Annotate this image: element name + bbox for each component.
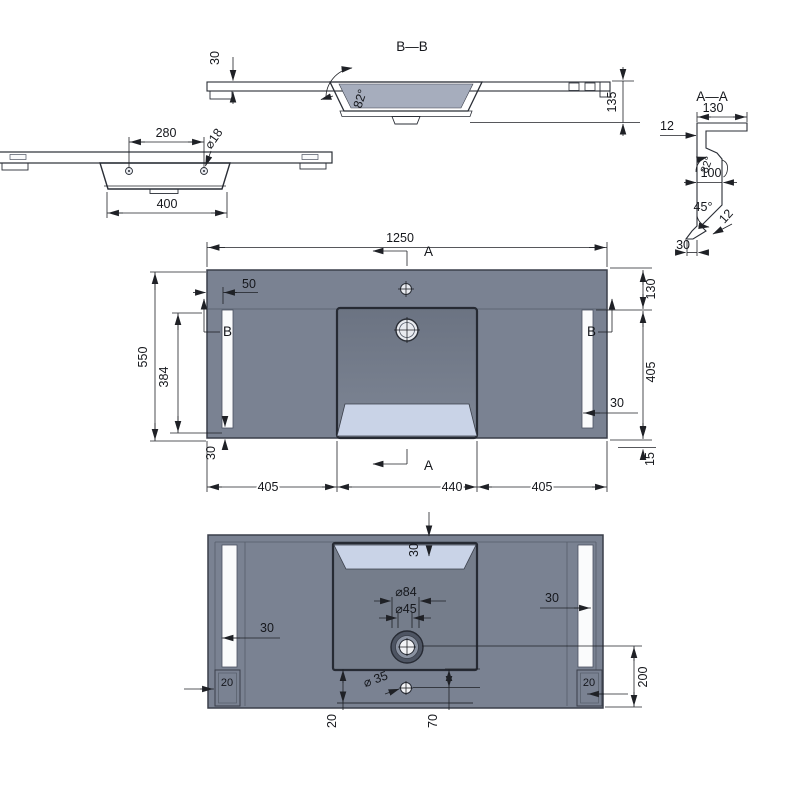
dim-drain-inner-dia: ⌀45 xyxy=(395,602,416,616)
dim-left-span: 405 xyxy=(258,480,279,494)
bb-left-foot xyxy=(210,91,232,99)
plan-view: 1250 A A B B 50 550 384 xyxy=(136,231,658,494)
dim-overflow-to-basin: 70 xyxy=(426,714,440,728)
dim-base-width: 30 xyxy=(676,238,690,252)
dim-basin-to-front: 384 xyxy=(157,367,171,388)
dim-total-height: 135 xyxy=(605,92,619,113)
bottom-left-slot xyxy=(222,545,237,667)
dim-right-foot-width: 20 xyxy=(583,677,595,689)
dim-basin-width: 400 xyxy=(157,197,178,211)
dim-front-margin: 15 xyxy=(643,452,657,466)
section-bb-title: B—B xyxy=(396,39,428,54)
bb-right-block-2 xyxy=(585,83,595,91)
bb-right-block-1 xyxy=(569,83,579,91)
section-marker-a-top: A xyxy=(424,244,433,259)
dim-wall-depth: 100 xyxy=(701,166,722,180)
dim-slot-length: 405 xyxy=(644,362,658,383)
dim-chamfer-angle: 45° xyxy=(694,200,713,214)
side-right-bracket xyxy=(300,163,326,169)
dim-slope-depth: 30 xyxy=(407,543,421,557)
dim-flange-width: 130 xyxy=(703,101,724,115)
bottom-right-slot xyxy=(578,545,593,667)
side-left-bracket xyxy=(2,163,28,170)
dim-left-slot-width: 30 xyxy=(260,621,274,635)
bottom-right-foot: 20 xyxy=(577,670,602,706)
plan-basin-slope xyxy=(337,404,477,436)
dim-drain-outer-dia: ⌀84 xyxy=(395,585,416,599)
bb-drain-boss xyxy=(392,117,420,125)
aa-profile-section xyxy=(686,123,747,239)
bottom-drain-assembly xyxy=(391,631,423,663)
dim-overall-width: 1250 xyxy=(386,231,414,245)
section-marker-a-bottom: A xyxy=(424,458,433,473)
bottom-view: 20 20 30 ⌀84 ⌀45 xyxy=(184,512,650,728)
dim-back-margin: 130 xyxy=(644,279,658,300)
aa-gasket-bump xyxy=(722,160,728,177)
side-countertop-slab xyxy=(0,152,332,163)
dim-slot-inset: 50 xyxy=(242,277,256,291)
side-left-slot xyxy=(10,155,26,160)
side-mount-hole-right xyxy=(201,168,208,175)
dim-right-slot-width: 30 xyxy=(545,591,559,605)
dim-drain-to-front: 200 xyxy=(636,667,650,688)
dim-slot-to-edge: 30 xyxy=(204,446,218,460)
side-right-slot xyxy=(302,155,318,160)
dim-chamfer-thickness: 12 xyxy=(716,206,736,226)
dim-flange-thickness: 12 xyxy=(660,119,674,133)
dim-left-foot-width: 20 xyxy=(221,677,233,689)
side-mount-hole-left xyxy=(126,168,133,175)
dim-hole-spacing: 280 xyxy=(156,126,177,140)
dim-center-span: 440 xyxy=(442,480,463,494)
section-marker-b-left: B xyxy=(223,324,232,339)
technical-drawing-canvas: 280 ⌀18 400 B—B 30 82° 135 A—A xyxy=(0,0,800,800)
bottom-left-foot: 20 xyxy=(215,670,240,706)
section-marker-b-right: B xyxy=(587,324,596,339)
dim-right-span: 405 xyxy=(532,480,553,494)
section-bb-view: B—B 30 82° 135 xyxy=(207,39,640,136)
dim-slot-width: 30 xyxy=(610,396,624,410)
bottom-basin-slope xyxy=(334,545,476,569)
side-elevation-view: 280 ⌀18 400 xyxy=(0,126,332,218)
section-aa-view: A—A 130 12 82° 100 45° 12 30 xyxy=(660,89,747,256)
bb-bowl-bottom-rim xyxy=(340,111,472,117)
side-basin-bowl xyxy=(100,163,230,189)
dim-overflow-offset: 20 xyxy=(325,714,339,728)
dim-hole-diameter: ⌀18 xyxy=(202,126,226,152)
dim-slab-thickness: 30 xyxy=(208,51,222,65)
dim-overall-depth: 550 xyxy=(136,347,150,368)
drawing-page: 280 ⌀18 400 B—B 30 82° 135 A—A xyxy=(0,0,800,800)
